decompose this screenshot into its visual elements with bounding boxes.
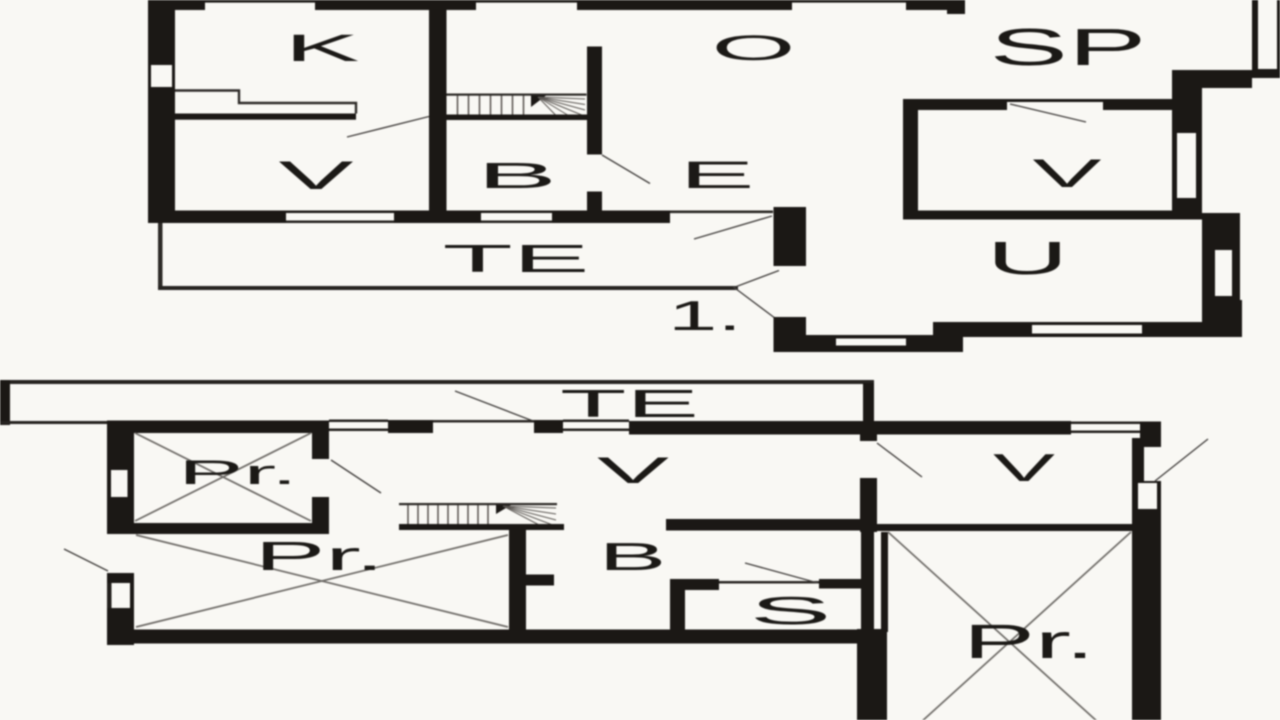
svg-text:1.: 1. bbox=[668, 292, 742, 339]
svg-text:SP: SP bbox=[990, 19, 1147, 77]
svg-text:Pr.: Pr. bbox=[963, 616, 1095, 669]
svg-text:K: K bbox=[285, 28, 360, 70]
svg-text:V: V bbox=[279, 154, 355, 198]
svg-text:Pr.: Pr. bbox=[178, 454, 298, 492]
svg-text:TE: TE bbox=[443, 238, 590, 281]
svg-text:B: B bbox=[599, 536, 667, 579]
svg-text:Pr.: Pr. bbox=[255, 533, 385, 579]
svg-text:V: V bbox=[993, 447, 1055, 490]
svg-text:V: V bbox=[1033, 152, 1103, 196]
svg-text:U: U bbox=[987, 232, 1069, 284]
svg-text:V: V bbox=[597, 449, 669, 491]
svg-text:E: E bbox=[680, 155, 755, 197]
svg-text:S: S bbox=[750, 590, 832, 633]
svg-text:B: B bbox=[477, 155, 557, 196]
svg-text:O: O bbox=[712, 29, 796, 68]
